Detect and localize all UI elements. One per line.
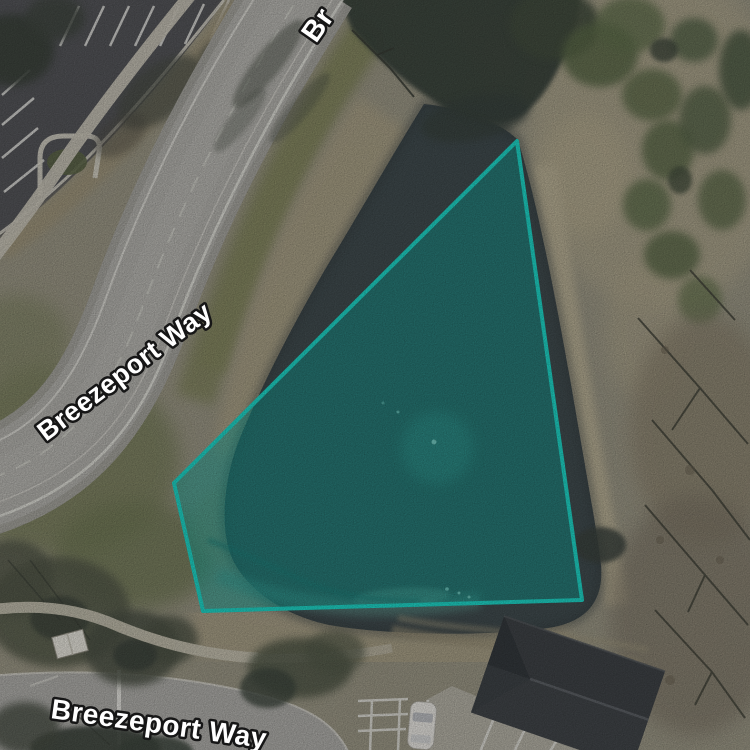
- aerial-basemap: Br Breezeport Way Breezeport Way: [0, 0, 750, 750]
- map-canvas[interactable]: Br Breezeport Way Breezeport Way: [0, 0, 750, 750]
